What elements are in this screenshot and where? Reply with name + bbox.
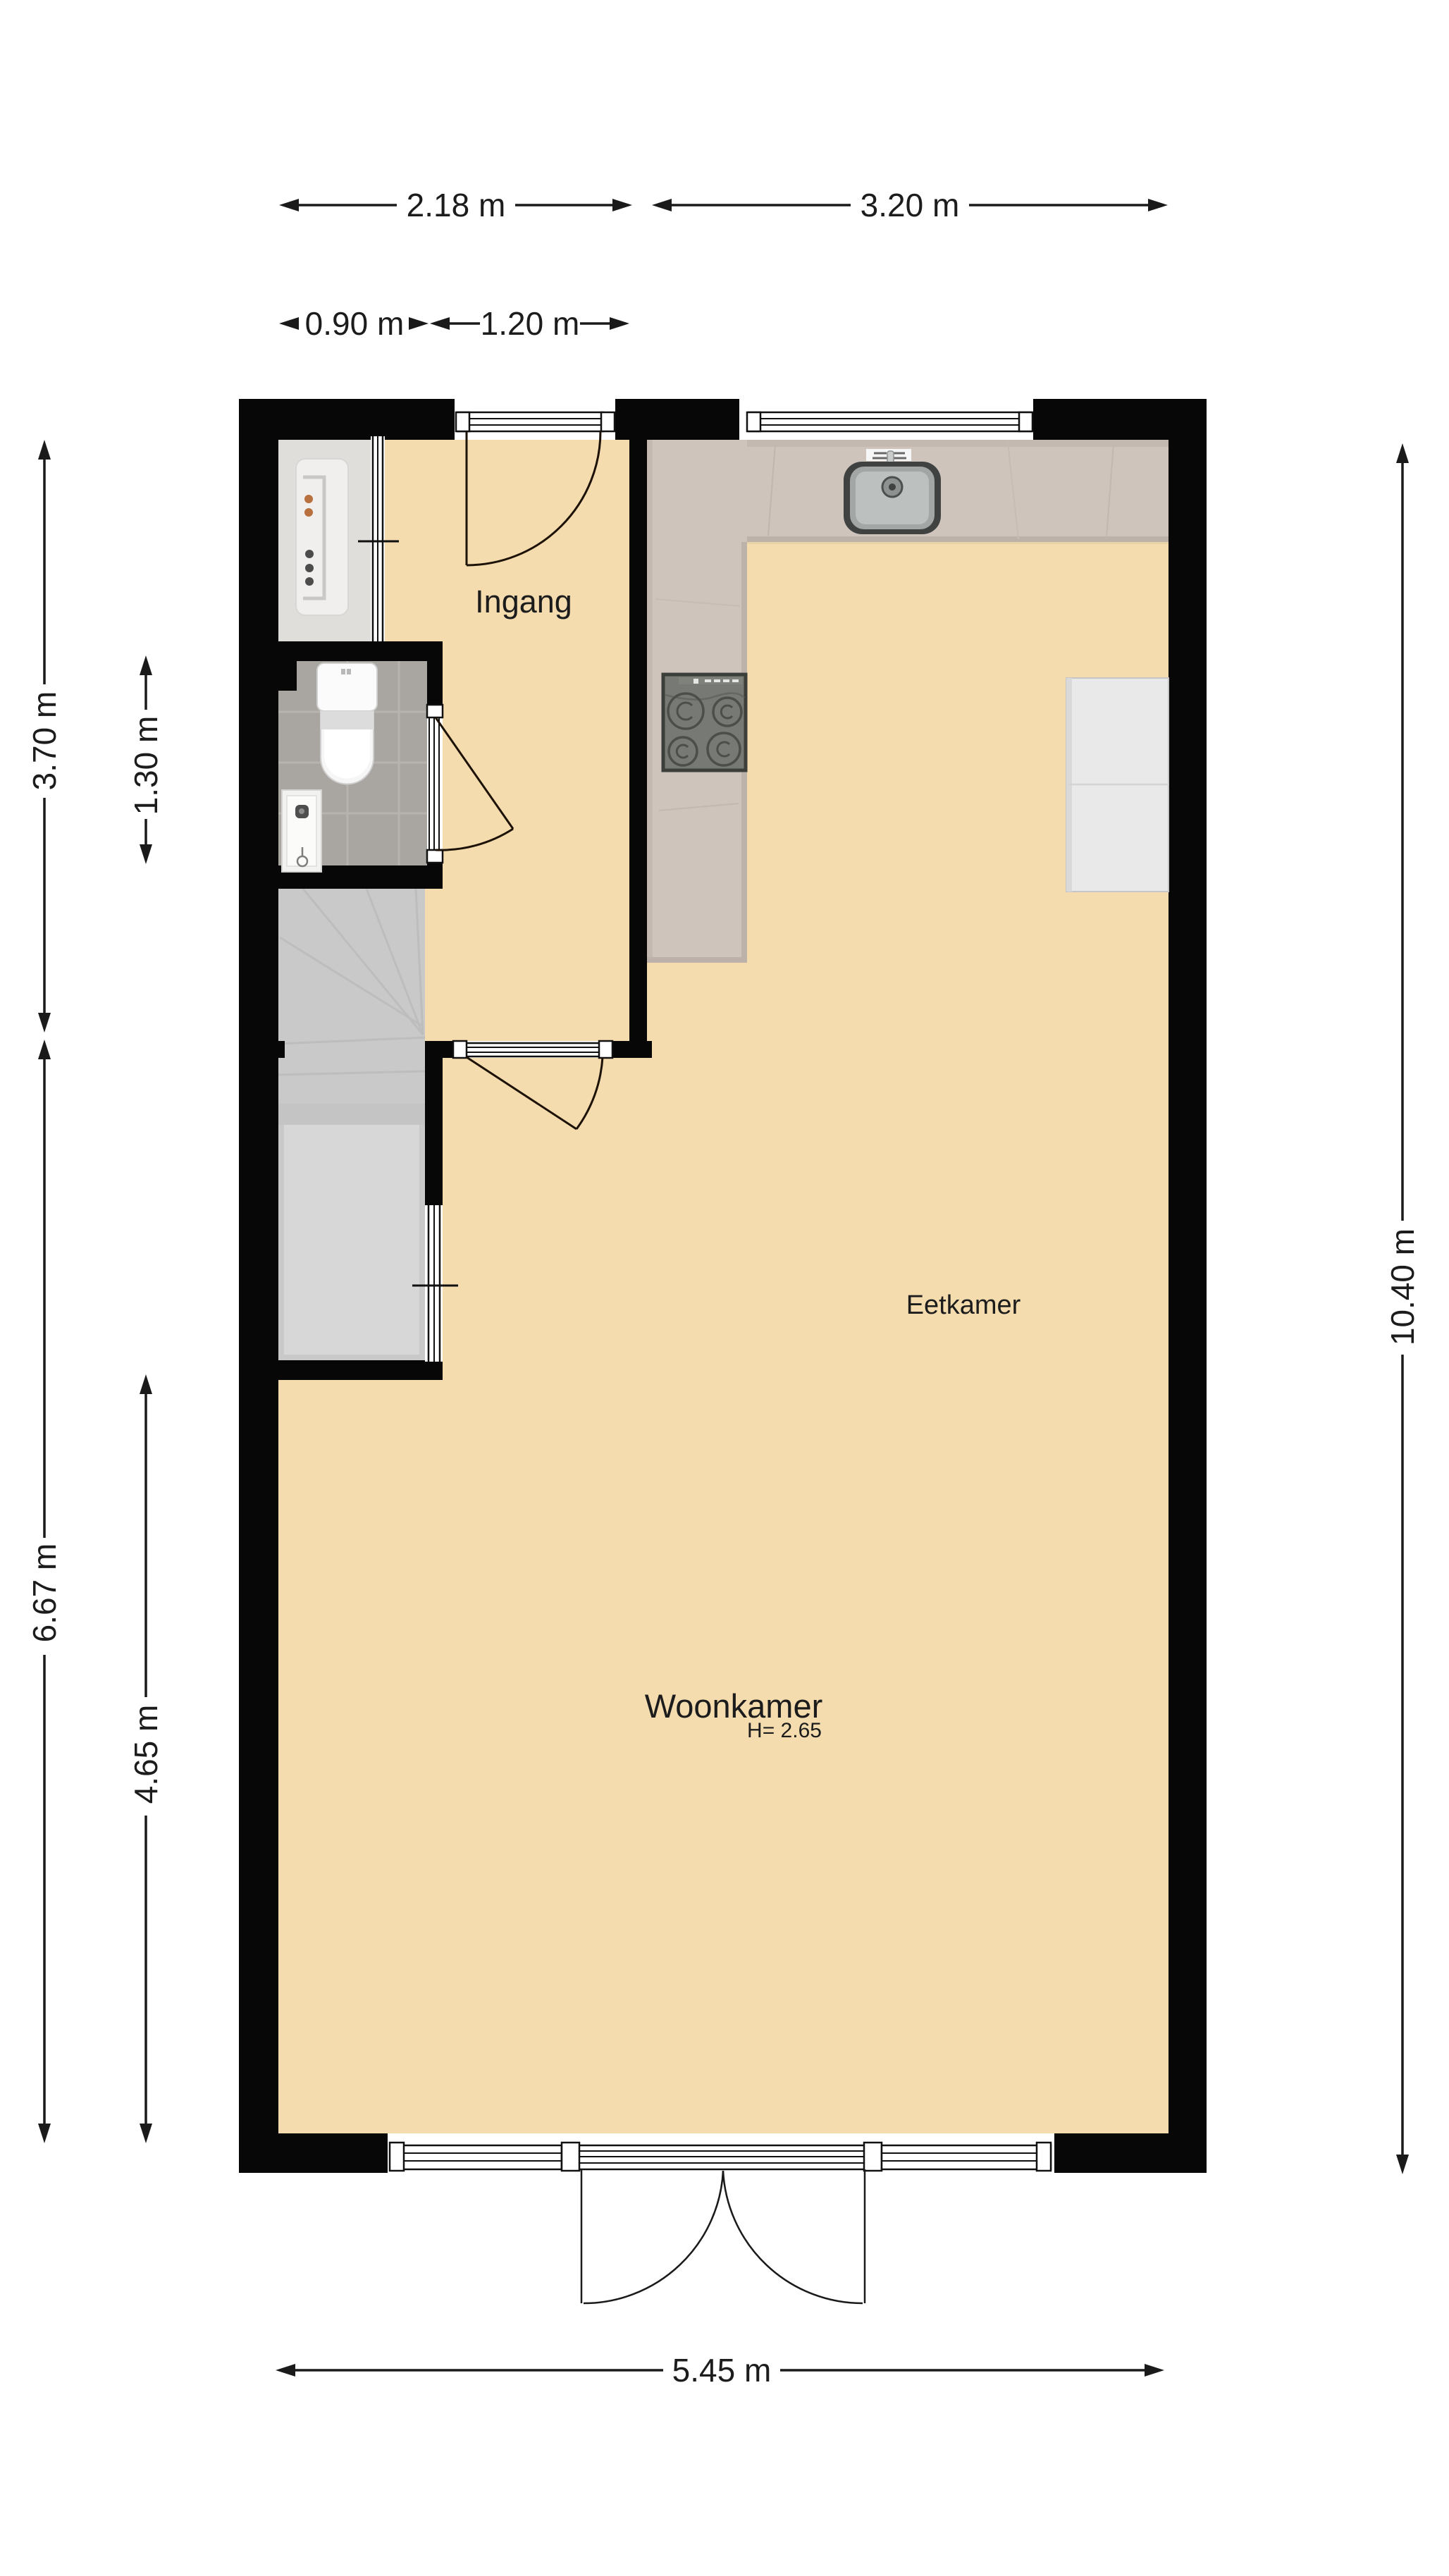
svg-text:1.30 m: 1.30 m	[128, 716, 164, 815]
svg-text:Ingang: Ingang	[475, 584, 572, 620]
svg-text:10.40 m: 10.40 m	[1384, 1228, 1421, 1345]
svg-text:H= 2.65: H= 2.65	[747, 1719, 822, 1742]
svg-text:Eetkamer: Eetkamer	[906, 1290, 1021, 1320]
svg-text:6.67 m: 6.67 m	[26, 1543, 63, 1643]
svg-text:0.90 m: 0.90 m	[305, 305, 405, 342]
svg-text:5.45 m: 5.45 m	[672, 2352, 772, 2389]
svg-text:4.65 m: 4.65 m	[128, 1705, 164, 1804]
svg-text:3.20 m: 3.20 m	[861, 187, 960, 223]
svg-text:1.20 m: 1.20 m	[481, 305, 580, 342]
svg-text:2.18 m: 2.18 m	[407, 187, 506, 223]
svg-text:3.70 m: 3.70 m	[26, 691, 63, 791]
